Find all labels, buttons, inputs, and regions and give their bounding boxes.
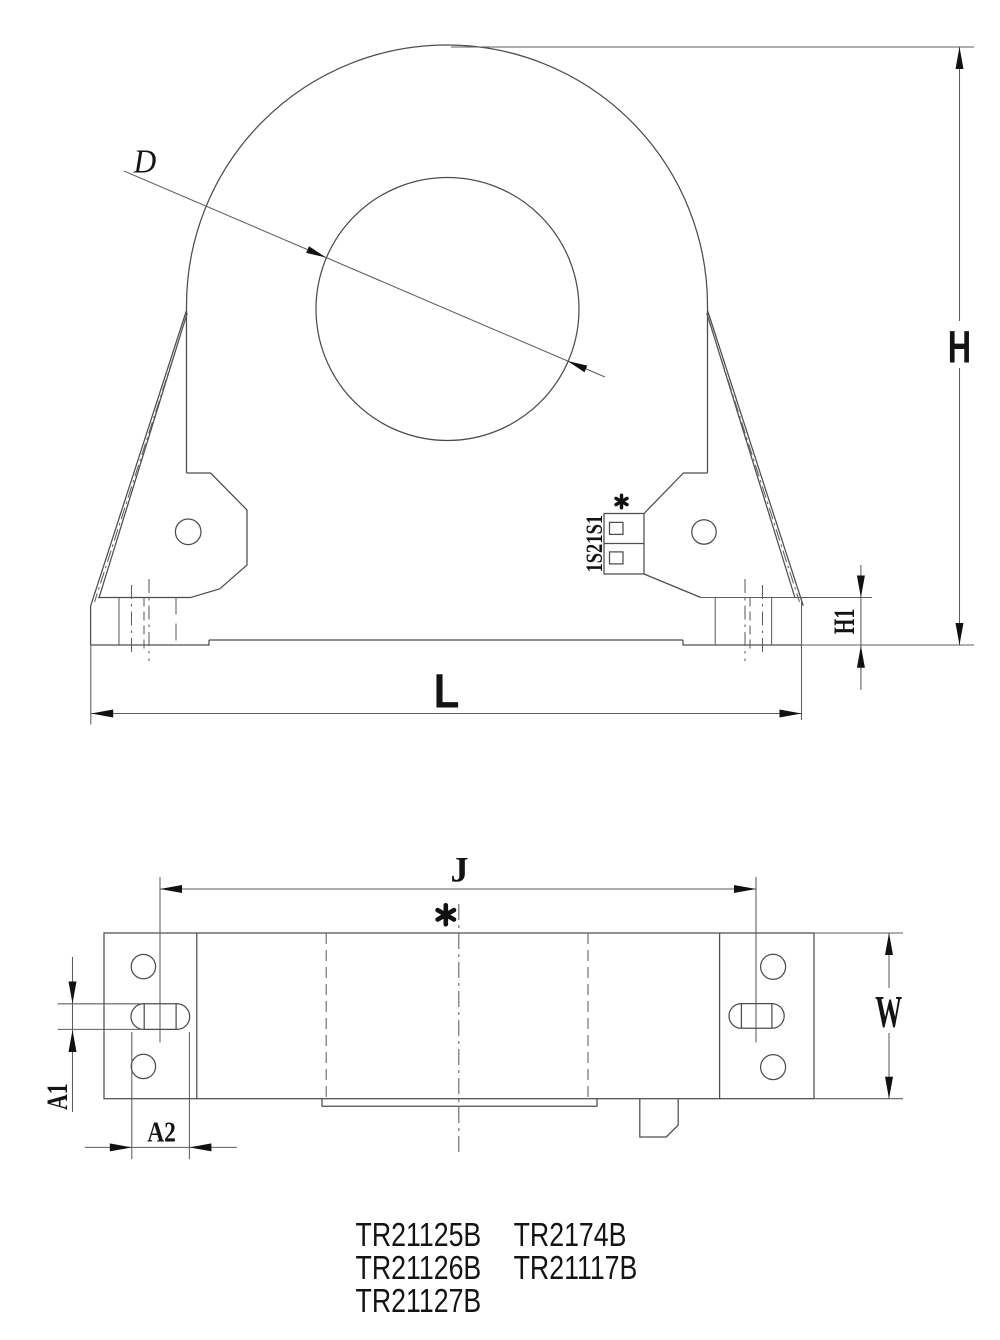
svg-text:TR21117B: TR21117B <box>514 1251 638 1287</box>
svg-text:1S1: 1S1 <box>581 515 608 544</box>
svg-text:1S2: 1S2 <box>581 544 608 573</box>
svg-text:TR21127B: TR21127B <box>356 1284 482 1320</box>
svg-text:A1: A1 <box>41 1083 74 1110</box>
svg-text:D: D <box>133 143 157 180</box>
svg-text:J: J <box>451 850 469 890</box>
svg-text:H: H <box>948 323 971 372</box>
svg-text:TR21126B: TR21126B <box>356 1251 482 1287</box>
svg-text:TR21125B: TR21125B <box>356 1217 482 1253</box>
svg-text:A2: A2 <box>147 1115 176 1148</box>
svg-text:TR2174B: TR2174B <box>514 1217 627 1253</box>
svg-text:L: L <box>434 664 460 718</box>
svg-text:H1: H1 <box>827 609 861 635</box>
svg-text:W: W <box>875 988 902 1038</box>
